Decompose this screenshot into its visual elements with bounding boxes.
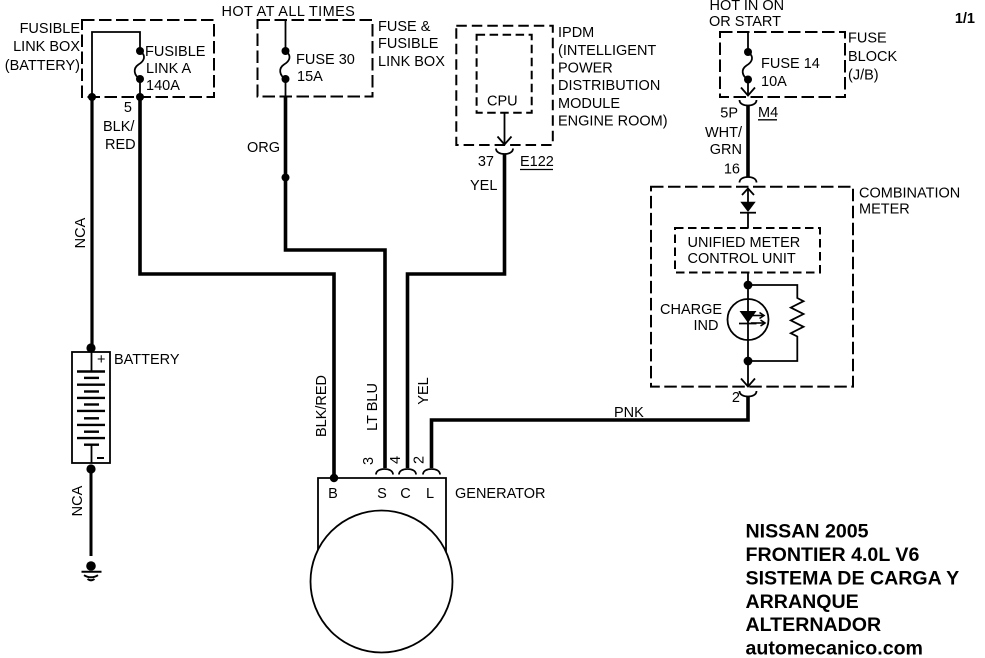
svg-text:COMBINATION: COMBINATION	[859, 186, 960, 202]
svg-text:HOT AT ALL TIMES: HOT AT ALL TIMES	[222, 4, 356, 20]
svg-text:140A: 140A	[146, 78, 180, 94]
svg-text:SISTEMA DE CARGA Y: SISTEMA DE CARGA Y	[746, 568, 960, 590]
svg-text:B: B	[328, 486, 338, 502]
svg-text:C: C	[400, 486, 410, 502]
svg-text:L: L	[426, 486, 434, 502]
svg-text:ALTERNADOR: ALTERNADOR	[746, 614, 882, 636]
svg-text:(J/B): (J/B)	[848, 68, 879, 84]
svg-text:automecanico.com: automecanico.com	[746, 638, 923, 658]
svg-text:LT BLU: LT BLU	[365, 383, 381, 431]
svg-text:(BATTERY): (BATTERY)	[5, 58, 80, 74]
svg-text:MODULE: MODULE	[558, 96, 620, 112]
svg-text:FRONTIER 4.0L V6: FRONTIER 4.0L V6	[746, 544, 920, 566]
svg-text:YEL: YEL	[470, 178, 497, 194]
svg-text:NCA: NCA	[73, 217, 89, 248]
svg-text:PNK: PNK	[614, 405, 644, 421]
svg-text:CPU: CPU	[487, 94, 518, 110]
svg-text:NISSAN 2005: NISSAN 2005	[746, 521, 869, 543]
svg-text:3: 3	[361, 457, 377, 465]
svg-text:2: 2	[412, 456, 428, 464]
svg-text:ENGINE ROOM): ENGINE ROOM)	[558, 114, 668, 130]
svg-text:5P: 5P	[720, 106, 738, 122]
svg-text:15A: 15A	[297, 69, 323, 85]
svg-text:+: +	[97, 352, 105, 368]
svg-text:CONTROL UNIT: CONTROL UNIT	[688, 251, 796, 267]
svg-text:IND: IND	[694, 318, 719, 334]
svg-text:1/1: 1/1	[955, 11, 975, 27]
svg-text:DISTRIBUTION: DISTRIBUTION	[558, 78, 660, 94]
svg-text:S: S	[377, 486, 387, 502]
svg-text:METER: METER	[859, 202, 910, 218]
svg-text:FUSIBLE: FUSIBLE	[145, 44, 206, 60]
svg-text:UNIFIED METER: UNIFIED METER	[688, 235, 801, 251]
svg-text:IPDM: IPDM	[558, 25, 594, 41]
svg-text:BLK/RED: BLK/RED	[314, 375, 330, 437]
svg-text:YEL: YEL	[416, 377, 432, 404]
svg-text:RED: RED	[105, 137, 136, 153]
svg-text:HOT IN ON: HOT IN ON	[710, 0, 785, 14]
svg-text:FUSE &: FUSE &	[378, 19, 431, 35]
svg-text:5: 5	[124, 100, 132, 116]
svg-text:FUSE 14: FUSE 14	[761, 56, 820, 72]
svg-text:(INTELLIGENT: (INTELLIGENT	[558, 43, 656, 59]
svg-text:BLOCK: BLOCK	[848, 49, 897, 65]
svg-text:GENERATOR: GENERATOR	[455, 486, 546, 502]
svg-text:BATTERY: BATTERY	[114, 352, 180, 368]
svg-text:FUSIBLE: FUSIBLE	[20, 21, 81, 37]
svg-text:CHARGE: CHARGE	[660, 302, 722, 318]
svg-text:37: 37	[478, 154, 494, 170]
svg-text:2: 2	[732, 390, 740, 406]
svg-text:ARRANQUE: ARRANQUE	[746, 591, 859, 613]
svg-text:M4: M4	[758, 105, 778, 121]
svg-text:GRN: GRN	[710, 142, 742, 158]
svg-text:10A: 10A	[761, 74, 787, 90]
svg-text:WHT/: WHT/	[705, 125, 743, 141]
svg-text:E122: E122	[520, 154, 554, 170]
svg-text:LINK A: LINK A	[146, 61, 191, 77]
svg-text:FUSE: FUSE	[848, 31, 887, 47]
svg-text:4: 4	[388, 456, 404, 464]
svg-text:ORG: ORG	[247, 140, 280, 156]
svg-text:LINK BOX: LINK BOX	[378, 54, 445, 70]
svg-text:BLK/: BLK/	[103, 119, 135, 135]
svg-text:FUSE 30: FUSE 30	[296, 52, 355, 68]
svg-text:FUSIBLE: FUSIBLE	[378, 36, 439, 52]
svg-text:LINK BOX: LINK BOX	[13, 39, 80, 55]
svg-text:POWER: POWER	[558, 61, 613, 77]
svg-text:NCA: NCA	[70, 485, 86, 516]
svg-text:OR START: OR START	[709, 14, 781, 30]
svg-text:16: 16	[724, 162, 740, 178]
